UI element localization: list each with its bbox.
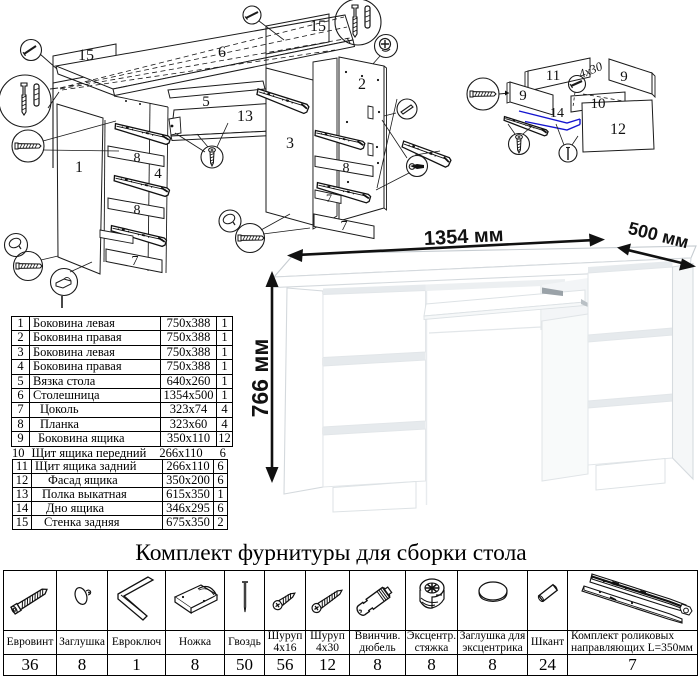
svg-text:1: 1 [75, 159, 83, 176]
svg-text:12: 12 [610, 121, 626, 138]
svg-text:10: 10 [591, 96, 606, 112]
svg-text:8: 8 [134, 151, 141, 166]
svg-text:13: 13 [237, 108, 253, 125]
svg-text:766 мм: 766 мм [247, 339, 273, 418]
svg-text:9: 9 [519, 88, 527, 104]
svg-text:1354 мм: 1354 мм [423, 224, 504, 250]
svg-text:11: 11 [546, 68, 560, 84]
svg-text:6: 6 [218, 44, 226, 61]
svg-text:7: 7 [341, 219, 348, 234]
svg-text:7: 7 [132, 254, 139, 269]
svg-text:8: 8 [134, 203, 141, 218]
svg-text:14: 14 [550, 106, 564, 121]
svg-text:15: 15 [310, 18, 326, 35]
svg-text:3: 3 [286, 135, 294, 152]
svg-text:2: 2 [358, 76, 366, 93]
svg-text:4: 4 [154, 166, 162, 182]
svg-text:8: 8 [343, 161, 350, 176]
svg-text:7: 7 [326, 191, 332, 205]
svg-text:9: 9 [620, 69, 628, 85]
